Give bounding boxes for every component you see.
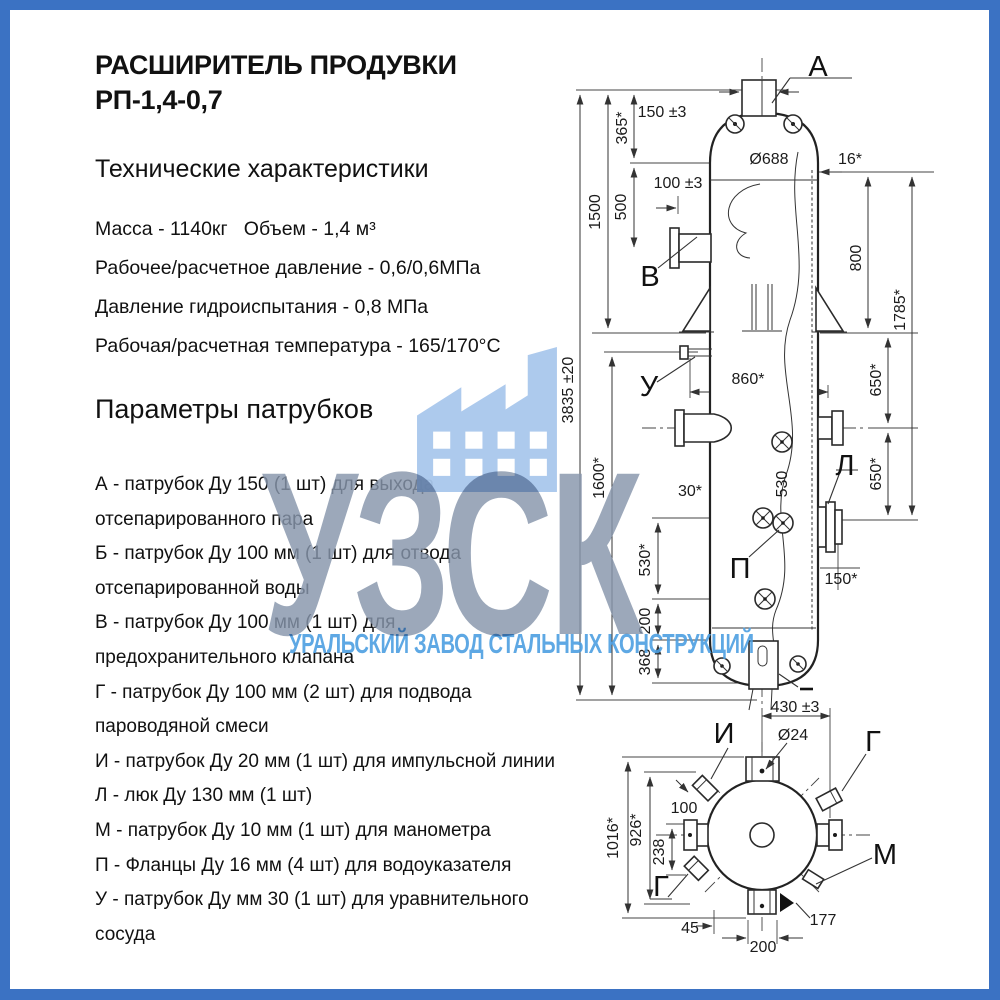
dimension-label: 650* bbox=[868, 364, 885, 397]
dimension-label: 926* bbox=[628, 814, 645, 847]
nozzle-line: отсепарированного пара bbox=[95, 509, 555, 544]
nozzle-line: предохранительного клапана bbox=[95, 647, 555, 682]
dimension-label: 500 bbox=[613, 194, 630, 221]
spec-line-mass-volume: Масса - 1140кг Объем - 1,4 м³ bbox=[95, 218, 501, 257]
dimension-label: 800 bbox=[848, 245, 865, 272]
nozzle-line: В - патрубок Ду 100 мм (1 шт) для bbox=[95, 612, 555, 647]
callout-label: А bbox=[808, 51, 828, 83]
top-view bbox=[622, 708, 872, 944]
dimension-label: 430 ±3 bbox=[771, 699, 820, 716]
dimension-label: 200 bbox=[637, 608, 654, 635]
nozzle-line: Л - люк Ду 130 мм (1 шт) bbox=[95, 785, 555, 820]
dimension-label: 200 bbox=[750, 939, 777, 956]
nozzle-line: Г - патрубок Ду 100 мм (2 шт) для подвод… bbox=[95, 682, 555, 717]
nozzle-line: М - патрубок Ду 10 мм (1 шт) для маномет… bbox=[95, 820, 555, 855]
nozzles-heading: Параметры патрубков bbox=[95, 394, 373, 425]
dimension-label: 1600* bbox=[591, 457, 608, 499]
nozzle-line: П - Фланцы Ду 16 мм (4 шт) для водоуказа… bbox=[95, 855, 555, 890]
callout-label: У bbox=[640, 371, 659, 403]
nozzle-list: А - патрубок Ду 150 (1 шт) для выхода от… bbox=[95, 474, 555, 958]
dimension-label: 1016* bbox=[605, 817, 622, 859]
dimension-label: 530* bbox=[637, 544, 654, 577]
dimension-label: 368 bbox=[637, 649, 654, 676]
nozzle-line: И - патрубок Ду 20 мм (1 шт) для импульс… bbox=[95, 751, 555, 786]
dimension-label: 45 bbox=[681, 920, 699, 937]
nozzle-line: У - патрубок Ду мм 30 (1 шт) для уравнит… bbox=[95, 889, 555, 924]
nozzle-line: А - патрубок Ду 150 (1 шт) для выхода bbox=[95, 474, 555, 509]
dimension-label: 3835 ±20 bbox=[560, 357, 577, 424]
callout-label: М bbox=[873, 839, 897, 871]
nozzle-line: пароводяной смеси bbox=[95, 716, 555, 751]
dimension-label: 1785* bbox=[892, 289, 909, 331]
dimension-label: 860* bbox=[732, 371, 765, 388]
spec-line-temperature: Рабочая/расчетная температура - 165/170°… bbox=[95, 335, 501, 374]
dimension-label: 530 bbox=[774, 471, 791, 498]
product-title: РАСШИРИТЕЛЬ ПРОДУВКИ РП-1,4-0,7 bbox=[95, 48, 457, 118]
dimension-label: 30* bbox=[678, 483, 702, 500]
callout-label: П bbox=[730, 553, 751, 585]
callout-label: Г bbox=[653, 871, 669, 903]
product-title-line2: РП-1,4-0,7 bbox=[95, 83, 457, 118]
nozzle-line: Б - патрубок Ду 100 мм (1 шт) для отвода bbox=[95, 543, 555, 578]
nozzle-line: сосуда bbox=[95, 924, 555, 959]
catalog-page: 150 ±3365*15003835 ±20500100 ±3Ø68816*80… bbox=[0, 0, 1000, 1000]
dimension-label: 100 ±3 bbox=[654, 175, 703, 192]
dimension-label: 238 bbox=[651, 839, 668, 866]
dimension-label: 177 bbox=[810, 912, 837, 929]
spec-line-pressure: Рабочее/расчетное давление - 0,6/0,6МПа bbox=[95, 257, 501, 296]
dimension-label: 1500 bbox=[587, 194, 604, 230]
specs-heading: Технические характеристики bbox=[95, 155, 429, 184]
specs-list: Масса - 1140кг Объем - 1,4 м³ Рабочее/ра… bbox=[95, 218, 501, 374]
callout-label: И bbox=[714, 718, 735, 750]
dimension-label: 16* bbox=[838, 151, 862, 168]
dimension-label: 100 bbox=[671, 800, 698, 817]
callout-label: Г bbox=[865, 726, 881, 758]
dimension-label: Ø24 bbox=[778, 727, 808, 744]
product-title-line1: РАСШИРИТЕЛЬ ПРОДУВКИ bbox=[95, 48, 457, 83]
dimension-label: 365* bbox=[614, 112, 631, 145]
dimension-label: Ø688 bbox=[749, 151, 788, 168]
nozzle-line: отсепарированной воды bbox=[95, 578, 555, 613]
dimension-label: 150 ±3 bbox=[638, 104, 687, 121]
dimension-label: 650* bbox=[868, 458, 885, 491]
callout-label: Л bbox=[835, 450, 854, 482]
callout-label: В bbox=[640, 261, 659, 293]
dimension-label: 150* bbox=[825, 571, 858, 588]
spec-line-hydrotest: Давление гидроиспытания - 0,8 МПа bbox=[95, 296, 501, 335]
